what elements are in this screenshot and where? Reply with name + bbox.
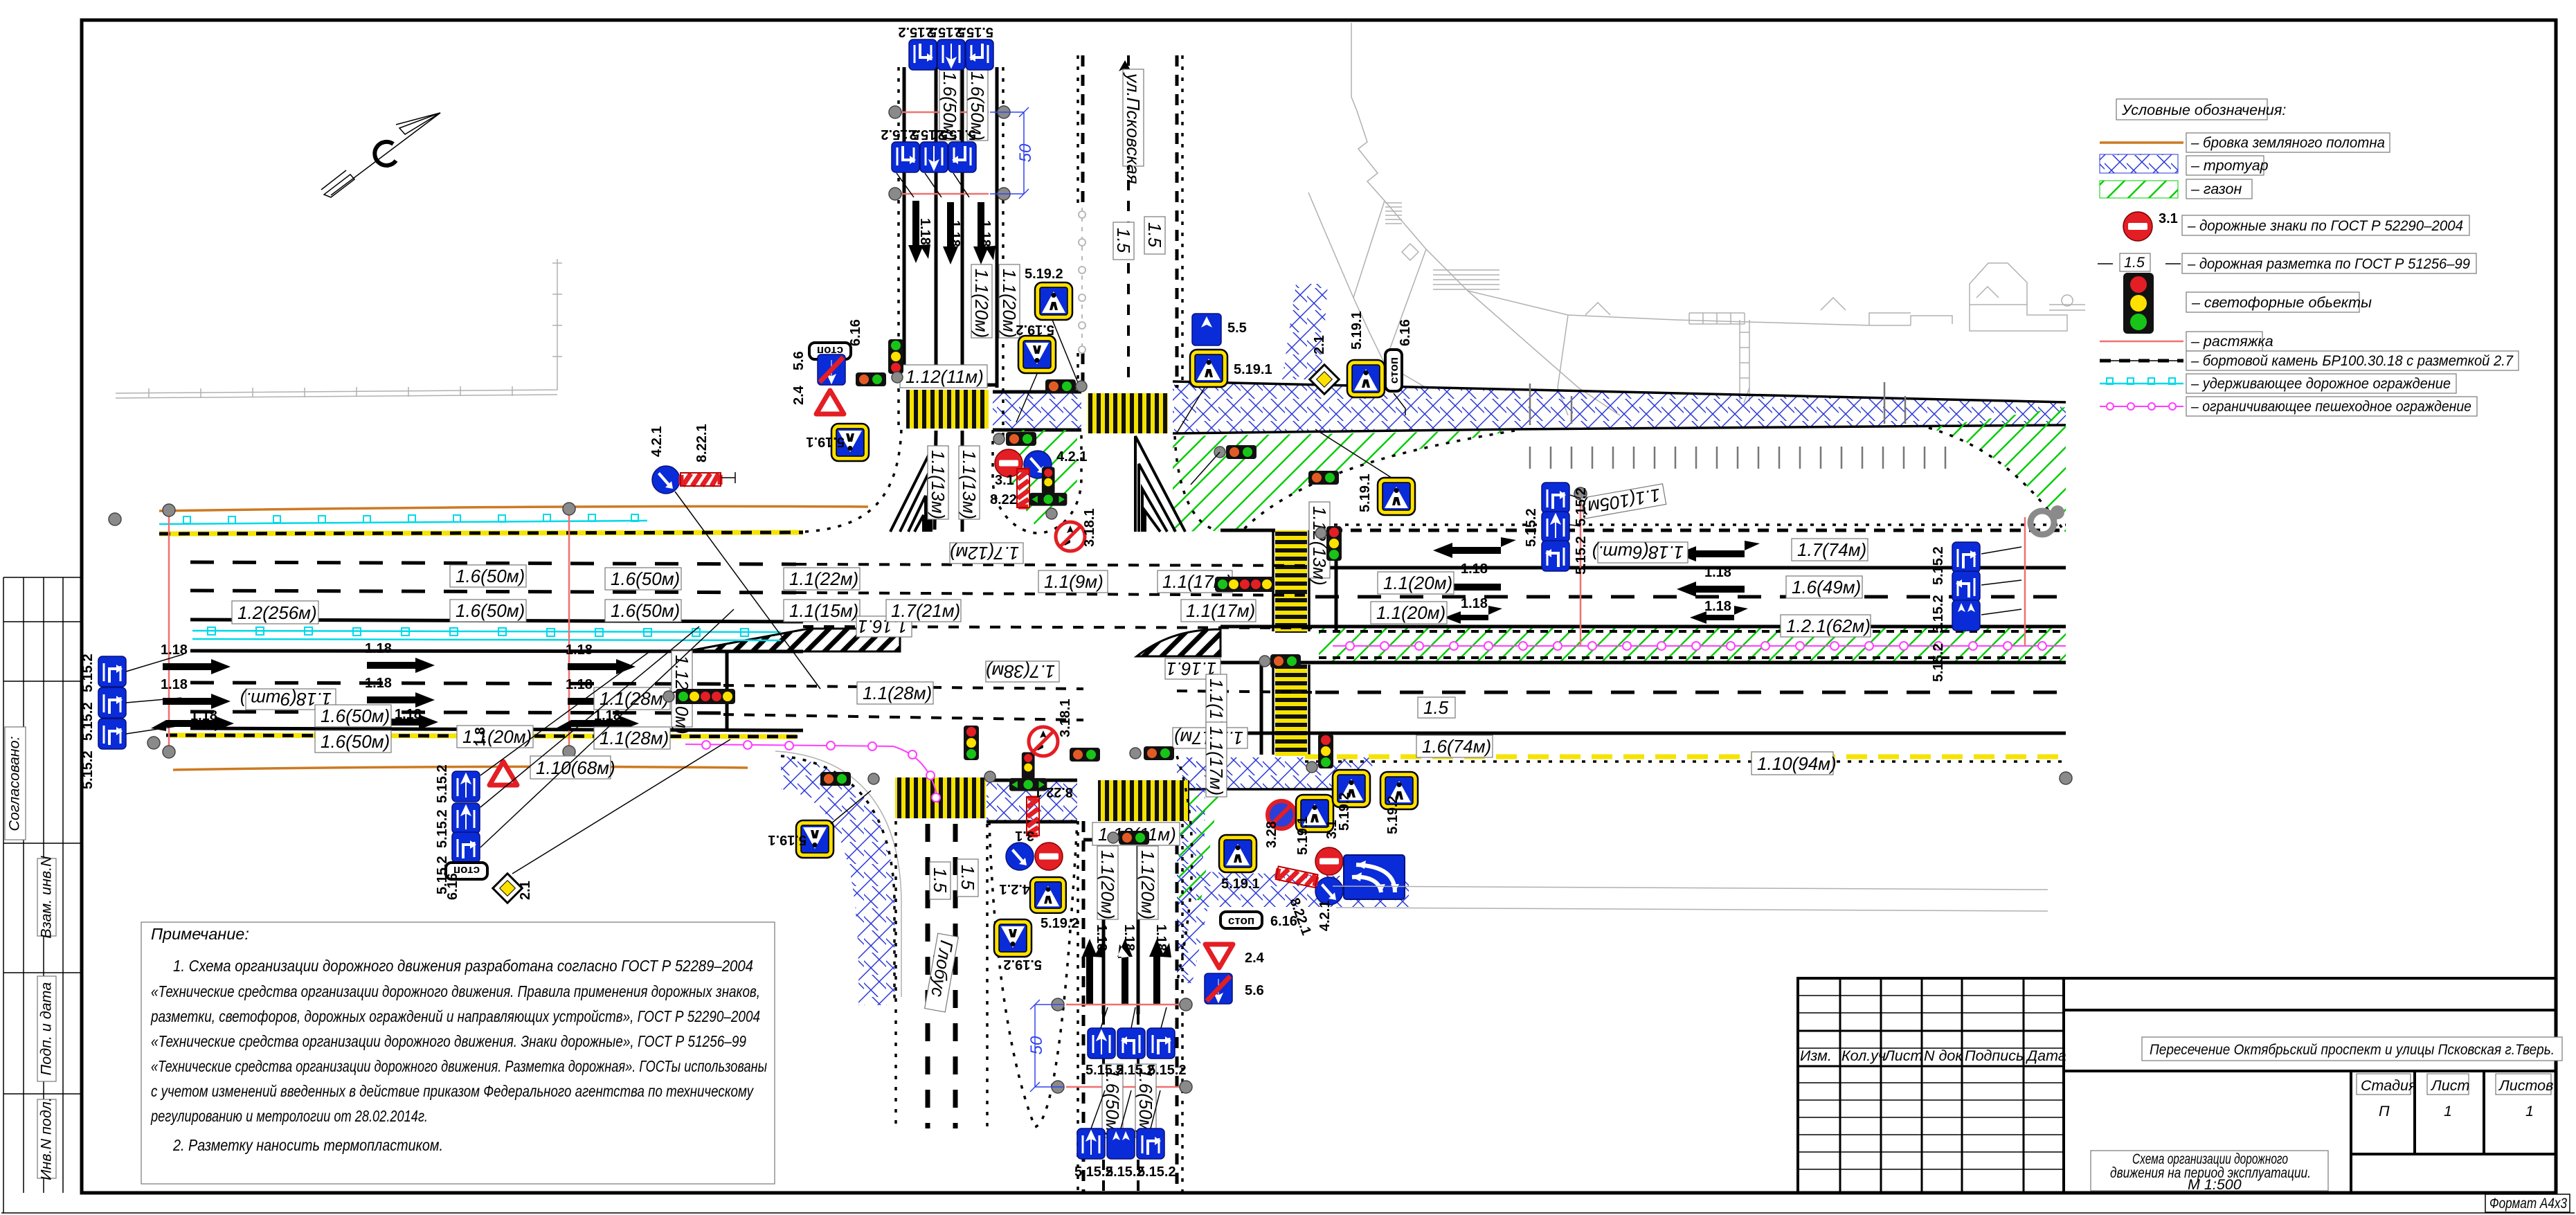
svg-text:1.2.1(62м): 1.2.1(62м) xyxy=(1786,615,1871,636)
svg-text:3.1: 3.1 xyxy=(2159,211,2178,226)
svg-text:1.18: 1.18 xyxy=(978,220,993,247)
svg-text:– газон: – газон xyxy=(2190,181,2242,197)
svg-text:5.19.2: 5.19.2 xyxy=(1041,916,1079,931)
svg-text:1.10(94м): 1.10(94м) xyxy=(1757,753,1837,774)
svg-text:1: 1 xyxy=(2444,1103,2452,1119)
svg-text:Подпись: Подпись xyxy=(1965,1047,2024,1064)
svg-text:50: 50 xyxy=(1016,143,1035,162)
svg-text:3.1: 3.1 xyxy=(1015,828,1034,843)
svg-text:с учетом изменений введенны: с учетом изменений введенных в действие … xyxy=(151,1082,754,1100)
svg-text:1.18: 1.18 xyxy=(1094,924,1109,951)
svg-text:4.2.1: 4.2.1 xyxy=(649,426,665,457)
svg-text:1.1(22м): 1.1(22м) xyxy=(789,568,858,589)
svg-text:– светофорные обьекты: – светофорные обьекты xyxy=(2191,294,2372,311)
svg-text:5.15.2: 5.15.2 xyxy=(1931,546,1946,585)
svg-text:1.18: 1.18 xyxy=(1461,561,1488,577)
svg-text:5.15.2: 5.15.2 xyxy=(1931,643,1946,682)
svg-text:2.1: 2.1 xyxy=(518,881,533,900)
svg-text:6.16: 6.16 xyxy=(1270,914,1297,929)
svg-text:М 1:500: М 1:500 xyxy=(2188,1176,2242,1193)
svg-text:1.18: 1.18 xyxy=(161,642,188,658)
svg-text:1.6(50м): 1.6(50м) xyxy=(456,566,525,586)
svg-text:2. Разметку наносить термоп: 2. Разметку наносить термопластиком. xyxy=(172,1136,443,1154)
svg-text:1.18: 1.18 xyxy=(947,220,962,247)
svg-text:5.19.1: 5.19.1 xyxy=(806,434,845,449)
svg-text:5.6: 5.6 xyxy=(1245,983,1264,998)
svg-text:1.18: 1.18 xyxy=(1461,596,1488,611)
svg-text:Условные обозначения:: Условные обозначения: xyxy=(2121,102,2286,118)
svg-text:Изм.: Изм. xyxy=(1800,1047,1832,1064)
svg-text:5.15.2: 5.15.2 xyxy=(435,764,450,803)
svg-text:1. Схема организации дорожн: 1. Схема организации дорожного движения … xyxy=(173,957,753,975)
svg-text:8.22: 8.22 xyxy=(990,492,1017,507)
svg-text:1.6(50м): 1.6(50м) xyxy=(611,600,680,621)
svg-text:1.18: 1.18 xyxy=(566,677,593,692)
svg-text:1.1(17м): 1.1(17м) xyxy=(1206,726,1227,795)
svg-text:регулированию и метрологии: регулированию и метрологии от 28.02.2014… xyxy=(150,1107,428,1125)
svg-text:– бровка земляного полотна: – бровка земляного полотна xyxy=(2190,134,2385,151)
svg-text:ул.Псковская: ул.Псковская xyxy=(1123,72,1144,184)
svg-text:5.6: 5.6 xyxy=(791,351,807,370)
svg-text:1.1(17м): 1.1(17м) xyxy=(1186,600,1255,621)
svg-text:5.15.2: 5.15.2 xyxy=(80,702,96,741)
svg-text:1.5: 1.5 xyxy=(2124,254,2145,271)
svg-text:1.18: 1.18 xyxy=(365,641,392,656)
svg-text:1.10(68м): 1.10(68м) xyxy=(536,757,615,778)
svg-text:1.1(9м): 1.1(9м) xyxy=(1044,571,1104,592)
svg-text:N док: N док xyxy=(1924,1047,1963,1064)
svg-text:5.19.1: 5.19.1 xyxy=(1349,311,1364,350)
svg-text:1.5: 1.5 xyxy=(957,865,978,890)
svg-text:1.1(28м): 1.1(28м) xyxy=(863,683,932,703)
svg-text:1: 1 xyxy=(2525,1103,2534,1119)
svg-text:1.5: 1.5 xyxy=(1113,228,1134,253)
svg-text:разметки, светофоров, дорожн: разметки, светофоров, дорожных ограждени… xyxy=(150,1007,760,1025)
svg-text:1.6(50м): 1.6(50м) xyxy=(1135,1068,1156,1137)
svg-text:1.18: 1.18 xyxy=(365,676,392,691)
svg-text:50: 50 xyxy=(1027,1036,1046,1054)
svg-text:3.18.1: 3.18.1 xyxy=(1082,508,1097,547)
svg-text:5.15.2: 5.15.2 xyxy=(80,654,96,692)
svg-text:1.1(20м): 1.1(20м) xyxy=(971,269,992,338)
svg-text:5.15.2: 5.15.2 xyxy=(1574,487,1589,526)
svg-text:4.2.1: 4.2.1 xyxy=(1056,449,1087,465)
svg-text:5.19.1: 5.19.1 xyxy=(1221,876,1260,892)
svg-text:3.18.1: 3.18.1 xyxy=(1058,699,1073,737)
svg-text:Листов: Листов xyxy=(2498,1077,2553,1094)
svg-text:«Технические средства органи: «Технические средства организации дорожн… xyxy=(151,982,760,1000)
svg-text:5.19.2: 5.19.2 xyxy=(1016,322,1054,337)
svg-text:4.2.1: 4.2.1 xyxy=(1317,901,1333,931)
svg-text:Инв.N подл.: Инв.N подл. xyxy=(38,1097,55,1180)
svg-text:1.18: 1.18 xyxy=(1122,924,1137,951)
svg-text:1.18: 1.18 xyxy=(1704,565,1731,580)
svg-text:1.6(49м): 1.6(49м) xyxy=(1792,577,1861,597)
svg-text:3.1: 3.1 xyxy=(1324,820,1340,839)
svg-text:– растяжка: – растяжка xyxy=(2190,333,2273,350)
svg-text:2.4: 2.4 xyxy=(1245,951,1265,966)
svg-text:1.6(50м): 1.6(50м) xyxy=(1102,1068,1123,1137)
svg-text:3.28: 3.28 xyxy=(1264,821,1279,848)
svg-text:5.15.2: 5.15.2 xyxy=(1148,1063,1187,1078)
svg-text:Подп. и дата: Подп. и дата xyxy=(38,982,55,1076)
svg-text:5.5: 5.5 xyxy=(1227,321,1247,336)
svg-text:1.18: 1.18 xyxy=(917,218,933,245)
svg-text:Кол.уч: Кол.уч xyxy=(1841,1047,1886,1064)
svg-text:2.1: 2.1 xyxy=(1312,335,1327,354)
svg-text:П: П xyxy=(2379,1103,2390,1119)
svg-text:Стадия: Стадия xyxy=(2361,1077,2417,1094)
svg-text:5.15.2: 5.15.2 xyxy=(1137,1164,1176,1180)
svg-text:1.6(50м): 1.6(50м) xyxy=(321,705,390,726)
svg-text:6.16: 6.16 xyxy=(1398,319,1413,346)
svg-text:5.19.1: 5.19.1 xyxy=(1295,816,1310,855)
svg-text:– дорожная разметка по ГОС: – дорожная разметка по ГОСТ Р 51256–99 xyxy=(2187,255,2470,272)
svg-text:5.19.2: 5.19.2 xyxy=(1025,267,1063,282)
svg-text:1.18: 1.18 xyxy=(395,707,422,722)
svg-text:5.15.2: 5.15.2 xyxy=(1524,508,1539,547)
svg-text:1.18: 1.18 xyxy=(161,677,188,692)
svg-text:«Технические средства органи: «Технические средства организации дорожн… xyxy=(151,1032,746,1050)
svg-text:5.19.1: 5.19.1 xyxy=(1358,474,1373,512)
svg-text:6.16: 6.16 xyxy=(445,873,460,900)
svg-text:– удерживающее дорожное огр: – удерживающее дорожное ограждение xyxy=(2190,375,2451,392)
svg-text:1.6(50м): 1.6(50м) xyxy=(611,568,680,589)
svg-text:1.7(21м): 1.7(21м) xyxy=(891,600,960,621)
svg-text:5.19.1: 5.19.1 xyxy=(768,832,807,847)
svg-text:5.19.2: 5.19.2 xyxy=(1385,795,1400,834)
svg-text:1.18: 1.18 xyxy=(566,642,593,658)
svg-text:1.7(12м): 1.7(12м) xyxy=(950,543,1019,564)
svg-text:– бортовой камень БР100.30.: – бортовой камень БР100.30.18 с разметко… xyxy=(2190,352,2514,369)
svg-text:5.15.2: 5.15.2 xyxy=(1931,595,1946,633)
svg-text:5.15.2: 5.15.2 xyxy=(955,24,993,39)
svg-text:1.12(11м): 1.12(11м) xyxy=(906,366,984,387)
svg-text:4.2.1: 4.2.1 xyxy=(1000,881,1030,897)
svg-text:1.6(74м): 1.6(74м) xyxy=(1422,736,1491,757)
svg-text:1.1(20м): 1.1(20м) xyxy=(1376,602,1445,623)
svg-text:1.1(20м): 1.1(20м) xyxy=(1383,573,1452,593)
svg-text:– тротуар: – тротуар xyxy=(2190,157,2269,174)
svg-text:1.5: 1.5 xyxy=(1423,697,1449,718)
svg-text:Пересечение Октябрьский прос: Пересечение Октябрьский проспект и улицы… xyxy=(2150,1041,2555,1058)
svg-text:2.4: 2.4 xyxy=(791,385,807,405)
svg-text:1.18: 1.18 xyxy=(1704,599,1731,614)
svg-text:– дорожные знаки по ГОСТ: – дорожные знаки по ГОСТ Р 52290–2004 xyxy=(2187,217,2463,234)
svg-text:1.7(74м): 1.7(74м) xyxy=(1797,539,1866,560)
svg-text:Примечание:: Примечание: xyxy=(151,925,249,943)
svg-text:Лист: Лист xyxy=(2430,1077,2469,1094)
svg-text:5.19.2: 5.19.2 xyxy=(1003,957,1042,972)
svg-text:6.16: 6.16 xyxy=(848,319,863,346)
svg-text:Дата: Дата xyxy=(2026,1047,2066,1064)
svg-text:1.18: 1.18 xyxy=(1153,924,1169,951)
svg-text:1.1(13м): 1.1(13м) xyxy=(959,450,980,519)
svg-text:5.15.2: 5.15.2 xyxy=(435,809,450,848)
svg-text:Согласовано:: Согласовано: xyxy=(6,736,23,831)
svg-text:1.5: 1.5 xyxy=(1144,222,1165,248)
svg-text:1.7(38м): 1.7(38м) xyxy=(986,661,1055,682)
svg-text:1.8: 1.8 xyxy=(473,727,488,746)
svg-text:1.1(20м): 1.1(20м) xyxy=(1137,850,1158,919)
svg-text:Формат А4х3: Формат А4х3 xyxy=(2489,1195,2567,1212)
svg-text:1.6(50м): 1.6(50м) xyxy=(321,731,390,752)
svg-text:1.18: 1.18 xyxy=(190,708,217,723)
svg-text:1.5: 1.5 xyxy=(930,867,951,893)
svg-text:5.15.2: 5.15.2 xyxy=(937,127,976,142)
svg-text:Лист: Лист xyxy=(1883,1047,1922,1064)
svg-text:5.15.2: 5.15.2 xyxy=(80,750,96,789)
svg-text:1.1(15м): 1.1(15м) xyxy=(789,600,858,621)
svg-text:1.6(50м): 1.6(50м) xyxy=(456,600,525,621)
svg-text:«Технические средства органи: «Технические средства организации дорожн… xyxy=(151,1057,767,1075)
svg-text:5.15.2: 5.15.2 xyxy=(1574,536,1589,575)
svg-text:3.1: 3.1 xyxy=(995,473,1014,488)
svg-text:1.2(256м): 1.2(256м) xyxy=(237,602,317,623)
svg-text:1.18(6шт.): 1.18(6шт.) xyxy=(1592,542,1684,563)
svg-text:5.19.1: 5.19.1 xyxy=(1234,362,1272,377)
svg-text:Взам. инв.N: Взам. инв.N xyxy=(38,856,55,939)
svg-text:1.1(28м): 1.1(28м) xyxy=(600,728,669,748)
svg-text:– ограничивающее пешеходное: – ограничивающее пешеходное ограждение xyxy=(2190,398,2471,415)
svg-text:8.22.1: 8.22.1 xyxy=(694,424,710,462)
svg-text:1.1(13м): 1.1(13м) xyxy=(928,450,948,519)
svg-text:1.1(20м): 1.1(20м) xyxy=(1097,850,1118,919)
svg-text:1.1(28м): 1.1(28м) xyxy=(600,688,669,709)
